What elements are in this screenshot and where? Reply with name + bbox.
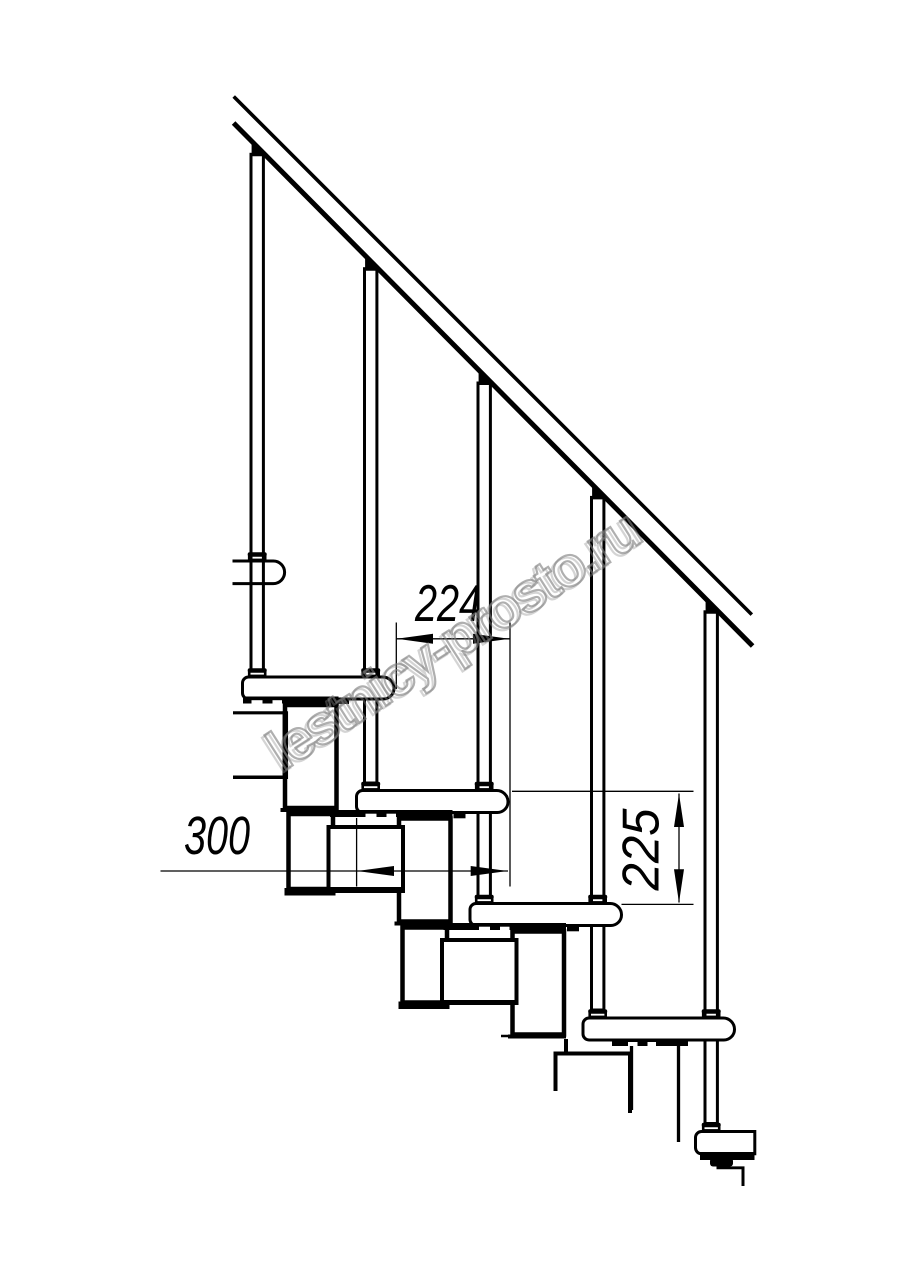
svg-text:225: 225 — [613, 807, 671, 891]
svg-text:300: 300 — [184, 806, 250, 866]
